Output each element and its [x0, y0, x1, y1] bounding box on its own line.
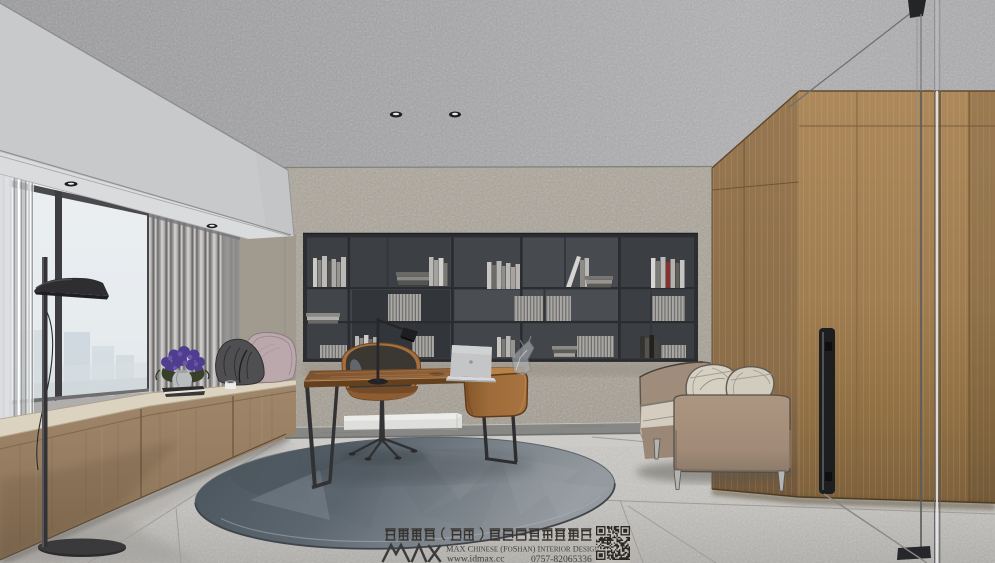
svg-text:MAX CHINESE (FOSHAN) INTERIOR: MAX CHINESE (FOSHAN) INTERIOR DESIGN [446, 545, 599, 554]
svg-text:www.idmax.cc: www.idmax.cc [447, 554, 504, 563]
svg-text:0757-82065336: 0757-82065336 [531, 554, 592, 563]
